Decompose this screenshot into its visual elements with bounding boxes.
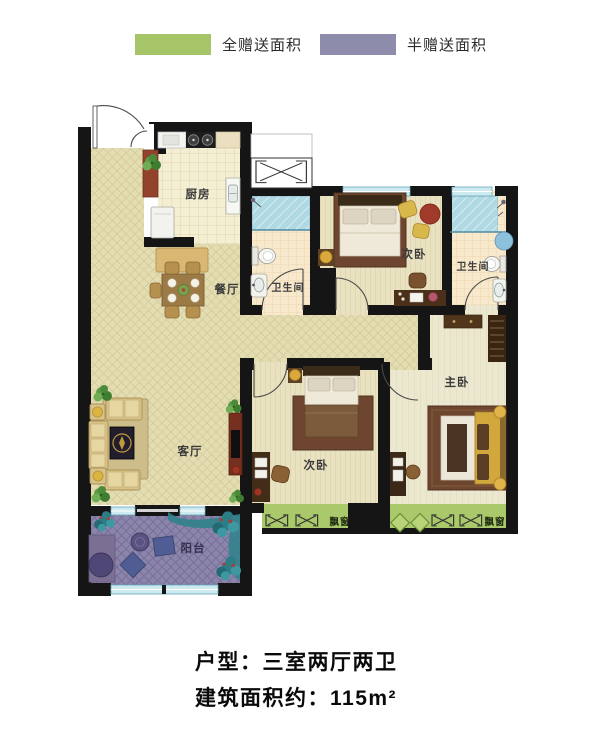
- living-label: 客厅: [177, 444, 203, 458]
- flue-shaft: [251, 134, 312, 188]
- dining-chair: [186, 262, 200, 274]
- balcony-sliding-door: [137, 509, 178, 512]
- bedroom-mid-label: 次卧: [304, 458, 329, 472]
- wardrobe: [488, 315, 506, 362]
- shower-right: [450, 196, 498, 232]
- balcony-label: 阳台: [181, 541, 206, 555]
- pouf-icon: [131, 533, 149, 551]
- bay-right-label: 飘窗: [483, 516, 505, 528]
- building-area-text: 建筑面积约：115m²: [195, 681, 398, 717]
- lamp-icon: [494, 478, 506, 490]
- floorplan-page: 全赠送面积 半赠送面积: [0, 0, 600, 746]
- lamp-icon: [494, 406, 506, 418]
- bed-headboard: [500, 410, 506, 486]
- floorplan-drawing: 厨房 餐厅 卫生间 次卧 卫生间 客厅 次卧 主卧 阳台 飘窗 飘窗: [0, 0, 600, 746]
- tv-icon: [231, 430, 240, 458]
- bed-blanket: [447, 424, 467, 472]
- fridge-icon: [151, 207, 174, 238]
- bay-left-label: 飘窗: [328, 516, 350, 528]
- bath-left-label: 卫生间: [272, 281, 305, 294]
- bedroom-top-label: 次卧: [402, 247, 427, 261]
- round-table: [420, 204, 440, 224]
- desk-chair: [406, 465, 420, 479]
- balcony-pot: [89, 553, 113, 577]
- dresser: [444, 315, 482, 328]
- lamp-icon: [320, 251, 332, 263]
- cushion: [153, 536, 175, 557]
- bed-blanket: [305, 405, 358, 437]
- dining-chair: [186, 306, 200, 318]
- master-label: 主卧: [445, 375, 470, 389]
- layout-type-text: 户型：三室两厅两卫: [195, 645, 398, 681]
- shower-left: [252, 196, 310, 230]
- entry-door-leaf: [93, 106, 97, 148]
- bed-headboard: [338, 195, 402, 206]
- desk-chair: [409, 273, 426, 288]
- dining-label: 餐厅: [214, 282, 240, 296]
- desk-chair: [271, 465, 291, 484]
- bed-headboard: [303, 366, 360, 376]
- entry-threshold: [91, 124, 154, 148]
- lamp-icon: [290, 370, 301, 381]
- chair: [412, 223, 430, 239]
- kitchen-label: 厨房: [186, 187, 211, 201]
- dining-chair: [165, 306, 179, 318]
- dining-chair: [165, 262, 179, 274]
- footer-caption: 户型：三室两厅两卫 建筑面积约：115m²: [195, 645, 398, 717]
- bath-right-label: 卫生间: [457, 260, 490, 273]
- dining-chair: [150, 283, 161, 298]
- corner-basin-icon: [495, 232, 513, 250]
